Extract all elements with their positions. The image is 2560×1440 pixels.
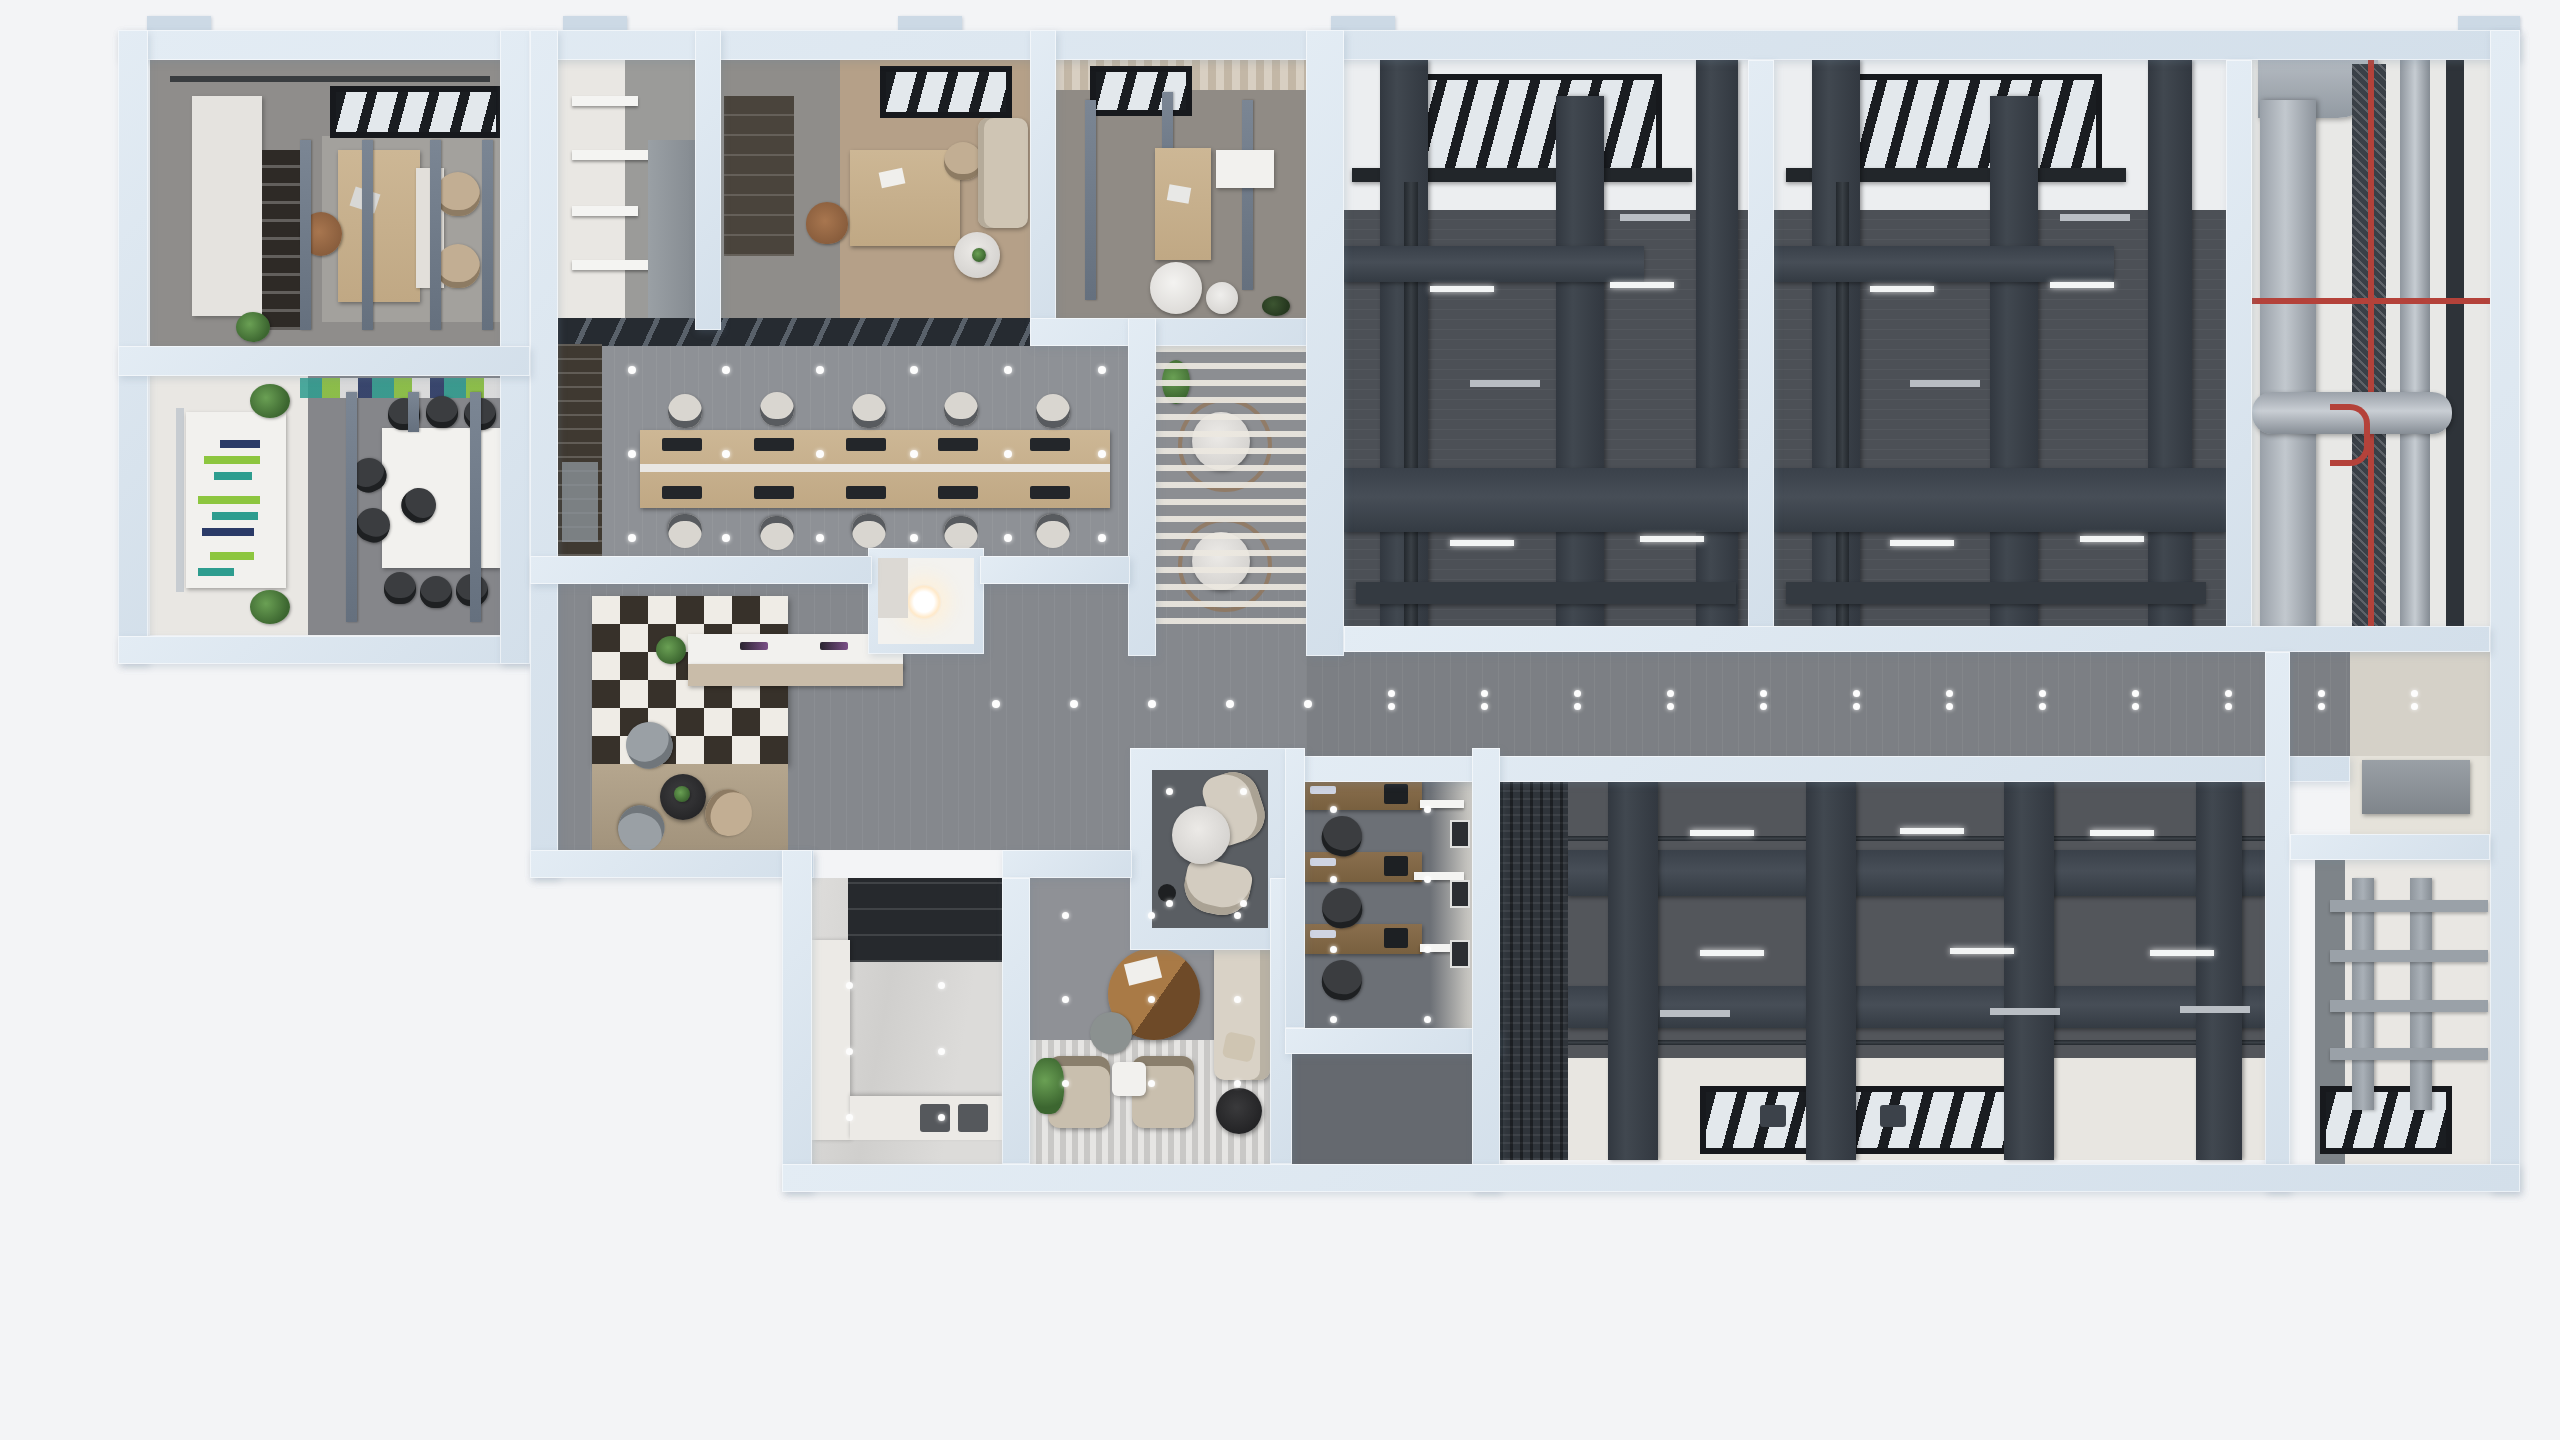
office1-table-plant [972, 248, 986, 262]
conference-plant-2 [250, 590, 290, 624]
hall-horizontal-duct-2 [1568, 986, 2265, 1028]
outer-wall-bottom [782, 1164, 2520, 1192]
wall-offices-industrial [1306, 30, 1344, 656]
ws-pc-3 [1384, 928, 1408, 948]
office2-plant [1262, 296, 1290, 316]
ws-monitor-2 [1310, 858, 1336, 866]
rooms-bottom-wall-c [1030, 318, 1308, 346]
nook-counter [878, 558, 908, 618]
ceiling-light-dot [628, 534, 636, 542]
ceiling-light-dot [1148, 1080, 1155, 1087]
bay1-diffuser [1620, 214, 1690, 221]
pod-marble-table [1172, 806, 1230, 864]
bay2-diffuser [1910, 380, 1980, 387]
ceiling-light-dot [1330, 876, 1337, 883]
open-office-slat-wall-glass [562, 462, 598, 542]
ceiling-light-dot [816, 450, 824, 458]
hall-right-wall [2265, 652, 2290, 1192]
storage-shelf-1 [572, 96, 638, 106]
exec-plant [236, 312, 270, 342]
open-office-chair [852, 514, 886, 548]
office1-chair-brown [806, 202, 848, 244]
rack-rail-1 [2352, 878, 2374, 1110]
bay1-vertical-duct-3 [1696, 60, 1738, 632]
ceiling-light-dot [1148, 700, 1156, 708]
conference-baffle-1 [346, 392, 357, 622]
hall-junction-box-2 [1880, 1105, 1906, 1127]
ceiling-light-dot [722, 534, 730, 542]
ceiling-light-dot [910, 366, 918, 374]
ceiling-light-dot [1234, 912, 1241, 919]
hall-light [1900, 828, 1964, 834]
bay2-vertical-duct-3 [2148, 60, 2192, 632]
open-office-chair [668, 394, 702, 428]
workstation-monitor [754, 486, 794, 499]
ceiling-light-dot [1070, 700, 1078, 708]
office2-skylight [1090, 66, 1192, 116]
exec-skylight [330, 86, 502, 138]
rack-room-skylight [2320, 1086, 2452, 1154]
bay2-vertical-duct-2 [1990, 96, 2038, 632]
hall-vertical-duct-2 [1806, 782, 1856, 1160]
office1-sofa [978, 118, 1028, 228]
ceiling-light-dot [1388, 703, 1395, 710]
ceiling-light-dot [1240, 788, 1247, 795]
left-wing-bottom-wall [118, 636, 532, 664]
industrial-bottom-wall [1344, 626, 2490, 652]
storage-cabinet [648, 140, 695, 318]
ceiling-light-dot [1062, 912, 1069, 919]
conference-chair [384, 572, 416, 604]
ceiling-light-dot [1304, 700, 1312, 708]
divider-bay2-shaft [2226, 60, 2252, 632]
ceiling-light-dot [846, 1048, 853, 1055]
bay1-horizontal-duct-3 [1356, 582, 1736, 604]
lobby-top-wall-left [530, 556, 872, 584]
hall-caged-riser [1500, 782, 1568, 1160]
ceiling-light-dot [938, 1048, 945, 1055]
open-office-chair [668, 514, 702, 548]
presentation-screen-rail [176, 408, 184, 592]
kitchen-upper-cabinets [848, 878, 1002, 962]
divider-bay1-bay2 [1748, 60, 1774, 632]
conference-chair [420, 576, 452, 608]
ceiling-light-dot [1330, 1016, 1337, 1023]
workstation-monitor [938, 438, 978, 451]
screen-bar [202, 528, 254, 536]
ws-pc-1 [1384, 784, 1408, 804]
screen-bar [204, 456, 260, 464]
ceiling-light-dot [1166, 900, 1173, 907]
hall-thin-pipe-1 [1568, 836, 2265, 841]
bay2-light [2080, 536, 2144, 542]
workstation-monitor [846, 486, 886, 499]
wall-openoffice-lounge [1128, 318, 1156, 656]
ws-monitor-1 [1310, 786, 1336, 794]
hall-diffuser [1660, 1010, 1730, 1017]
hall-vertical-duct-1 [1608, 782, 1658, 1160]
reception-screen-1 [740, 642, 768, 650]
bay1-horizontal-duct-1 [1344, 246, 1644, 282]
conference-plant-1 [250, 384, 290, 418]
office1-wall-unit [724, 96, 794, 256]
lounge-louver-slats [1156, 346, 1306, 630]
workstation-monitor [1030, 438, 1070, 451]
ceiling-light-dot [1330, 946, 1337, 953]
open-office-chair [1036, 394, 1070, 428]
ceiling-light-dot [1148, 996, 1155, 1003]
workstation-monitor [1030, 486, 1070, 499]
ceiling-light-dot [1240, 900, 1247, 907]
exec-baffle-4 [482, 140, 493, 330]
hall-diffuser [1990, 1008, 2060, 1015]
ceiling-light-dot [1004, 366, 1012, 374]
bay2-light [1870, 286, 1934, 292]
office1-skylight [880, 66, 1012, 118]
storage-shelf-3 [572, 206, 638, 216]
open-office-chair [760, 516, 794, 550]
hall-light [2150, 950, 2214, 956]
lobby-bottom-wall [530, 850, 814, 878]
conference-baffle-3 [470, 392, 481, 622]
ceiling-light-dot [2132, 703, 2139, 710]
bay2-horizontal-duct-1 [1774, 246, 2114, 282]
reception-desk-front [688, 664, 903, 686]
bay1-light [1640, 536, 1704, 542]
bay2-horizontal-duct-3 [1786, 582, 2206, 604]
ceiling-light-dot [992, 700, 1000, 708]
ceiling-light-dot [2411, 690, 2418, 697]
lounge-side-table-gray [1090, 1012, 1132, 1054]
ceiling-light-dot [1853, 690, 1860, 697]
ceiling-light-dot [1166, 788, 1173, 795]
workstation-monitor [662, 486, 702, 499]
ceiling-light-dot [1330, 806, 1337, 813]
exec-desk [338, 150, 420, 302]
ceiling-light-dot [1388, 690, 1395, 697]
open-office-chair [852, 394, 886, 428]
ceiling-light-dot [1574, 690, 1581, 697]
ceiling-light-dot [1226, 700, 1234, 708]
rack-shelf-4 [2330, 1048, 2488, 1060]
workstation-monitor [846, 438, 886, 451]
nook-round-light [906, 584, 942, 620]
divider-storage-office1 [695, 30, 721, 330]
lobby-table-plant [674, 786, 690, 802]
ceiling-light-dot [1424, 806, 1431, 813]
ceiling-light-dot [1481, 703, 1488, 710]
ceiling-light-dot [628, 450, 636, 458]
hall-left-wall [1472, 748, 1500, 1192]
ws-office-left-wall [1285, 748, 1305, 1028]
hall-vertical-duct-4 [2196, 782, 2242, 1160]
bay1-light [1610, 282, 1674, 288]
ceiling-light-dot [2318, 690, 2325, 697]
ceiling-light-dot [2039, 690, 2046, 697]
exec-guest-chair-2 [436, 244, 480, 288]
workstation-office-window-light [1430, 770, 1472, 1055]
ceiling-light-dot [1667, 690, 1674, 697]
exec-baffle-2 [362, 140, 373, 330]
ceiling-light-dot [910, 450, 918, 458]
ceiling-light-dot [1098, 366, 1106, 374]
ceiling-light-dot [1760, 690, 1767, 697]
office2-desk [1155, 148, 1211, 260]
bay2-horizontal-duct-2 [1774, 468, 2226, 532]
ceiling-light-dot [1098, 534, 1106, 542]
workstation-monitor [662, 438, 702, 451]
office1-chair [944, 142, 982, 180]
ws-pc-2 [1384, 856, 1408, 876]
office2-baffle-1 [1085, 100, 1096, 300]
bay1-vertical-duct-2 [1556, 96, 1604, 632]
conference-baffle-2 [408, 392, 419, 432]
ceiling-light-dot [2225, 703, 2232, 710]
hall-vertical-duct-3 [2004, 782, 2054, 1160]
screen-bar [198, 496, 260, 504]
conference-table [382, 428, 500, 568]
ceiling-light-dot [1234, 1080, 1241, 1087]
screen-bar [210, 552, 254, 560]
exec-baffle-1 [300, 140, 311, 330]
hall-light [1950, 948, 2014, 954]
ceiling-light-dot [2225, 690, 2232, 697]
rack-shelf-1 [2330, 900, 2488, 912]
bay1-light [1450, 540, 1514, 546]
floor-plan-render [0, 0, 2560, 1440]
hall-skylight [1700, 1086, 2052, 1154]
ceiling-light-dot [1062, 1080, 1069, 1087]
corridor-floor [1306, 652, 2350, 756]
screen-bar [214, 472, 252, 480]
rack-shelf-3 [2330, 1000, 2488, 1012]
corridor-bottom-wall [1290, 756, 2350, 782]
hall-light [1700, 950, 1764, 956]
presentation-screen [186, 412, 286, 588]
service-niche-cabinet [2362, 760, 2470, 814]
ceiling-light-dot [722, 366, 730, 374]
niche-bottom-wall [2290, 834, 2490, 860]
bay2-light [1890, 540, 1954, 546]
ceiling-light-dot [1946, 703, 1953, 710]
kitchen-tall-unit [812, 940, 850, 1140]
below-office-floor [1292, 1054, 1472, 1164]
hall-thin-pipe-2 [1568, 1040, 2265, 1045]
exec-guest-chair-1 [436, 172, 480, 216]
screen-bar [220, 440, 260, 448]
ceiling-light-dot [2039, 703, 2046, 710]
conference-chair [426, 396, 458, 428]
ceiling-light-dot [1424, 876, 1431, 883]
ceiling-light-dot [1946, 690, 1953, 697]
reception-screen-2 [820, 642, 848, 650]
kitchen-left-outer-wall [782, 850, 812, 1192]
lounge-cube-table [1112, 1062, 1146, 1096]
ceiling-light-dot [1424, 946, 1431, 953]
shaft-round-pipe-silver [2400, 60, 2430, 632]
bay1-horizontal-duct-2 [1344, 468, 1748, 532]
ceiling-light-dot [2132, 690, 2139, 697]
ws-wall-frame-2 [1450, 880, 1470, 908]
corridor-beige-floor [2350, 652, 2490, 756]
ceiling-light-dot [938, 982, 945, 989]
storage-shelf-2 [572, 150, 654, 160]
ws-wall-frame-1 [1450, 820, 1470, 848]
exec-baffle-3 [430, 140, 441, 330]
open-office-chair [944, 516, 978, 550]
ceiling-light-dot [846, 1114, 853, 1121]
rack-rail-2 [2410, 878, 2432, 1110]
ceiling-light-dot [1481, 690, 1488, 697]
ws-wall-frame-3 [1450, 940, 1470, 968]
open-office-chair [1036, 514, 1070, 548]
ceiling-light-dot [1004, 534, 1012, 542]
screen-bar [212, 512, 258, 520]
ceiling-light-dot [1098, 450, 1106, 458]
ceiling-light-dot [722, 450, 730, 458]
ceiling-light-dot [1062, 996, 1069, 1003]
divider-office1-office2 [1030, 30, 1056, 330]
bay2-skylight [1840, 74, 2102, 180]
hall-light [2090, 830, 2154, 836]
shaft-dark-tray [2446, 60, 2464, 632]
lounge-plant [1032, 1058, 1064, 1114]
block-left-wall [530, 30, 558, 878]
office2-cabinet [1216, 150, 1274, 188]
ceiling-light-dot [628, 366, 636, 374]
ceiling-light-dot [816, 366, 824, 374]
bay1-light [1430, 286, 1494, 292]
hall-light [1690, 830, 1754, 836]
reception-plant [656, 636, 686, 664]
shaft-red-elbow [2330, 404, 2370, 466]
hall-junction-box-1 [1760, 1105, 1786, 1127]
office2-coffee-table-small [1206, 282, 1238, 314]
bay2-diffuser [2060, 214, 2130, 221]
exec-cabinet-band [192, 96, 262, 316]
hall-horizontal-duct-1 [1568, 850, 2265, 896]
lobby-top-wall-right [980, 556, 1130, 584]
pod-floor-lamp [1158, 884, 1176, 902]
ws-monitor-3 [1310, 930, 1336, 938]
screen-bar [198, 568, 234, 576]
divider-kitchen-lounge [1002, 878, 1030, 1164]
ws-wall-shelf-2 [1414, 872, 1464, 880]
ceiling-light-dot [1667, 703, 1674, 710]
office2-coffee-table-big [1150, 262, 1202, 314]
ceiling-light-dot [1853, 703, 1860, 710]
open-office-chair [944, 392, 978, 426]
exec-ceiling-track [170, 76, 490, 82]
ceiling-light-dot [1424, 1016, 1431, 1023]
open-office-chair [760, 392, 794, 426]
ceiling-light-dot [1574, 703, 1581, 710]
office2-baffle-3 [1242, 100, 1253, 290]
workstation-monitor [938, 486, 978, 499]
bay2-light [2050, 282, 2114, 288]
rack-shelf-2 [2330, 950, 2488, 962]
lounge-dark-side-table [1216, 1088, 1262, 1134]
ceiling-light-dot [1234, 996, 1241, 1003]
ws-office-bottom-wall [1285, 1028, 1500, 1054]
bay1-diffuser [1470, 380, 1540, 387]
shaft-red-pipe-horizontal [2252, 298, 2490, 304]
outer-wall-right [2490, 30, 2520, 1192]
ceiling-light-dot [2411, 703, 2418, 710]
ceiling-light-dot [1148, 912, 1155, 919]
ceiling-light-dot [2318, 703, 2325, 710]
ceiling-light-dot [938, 1114, 945, 1121]
kitchen-sink-2 [958, 1104, 988, 1132]
workstation-monitor [754, 438, 794, 451]
bench-desk-divider [640, 464, 1110, 472]
kitchen-lounge-top-wall [1002, 850, 1132, 878]
ceiling-light-dot [816, 534, 824, 542]
shaft-silver-duct-vertical [2260, 100, 2316, 632]
shaft-red-pipe-vertical [2368, 60, 2374, 632]
hall-diffuser [2180, 1006, 2250, 1013]
left-wing-divider-wall [118, 346, 530, 376]
bay1-skylight [1400, 74, 1662, 180]
kitchen-sink-1 [920, 1104, 950, 1132]
ceiling-light-dot [846, 982, 853, 989]
ceiling-light-dot [910, 534, 918, 542]
ceiling-light-dot [1004, 450, 1012, 458]
ceiling-light-dot [1760, 703, 1767, 710]
